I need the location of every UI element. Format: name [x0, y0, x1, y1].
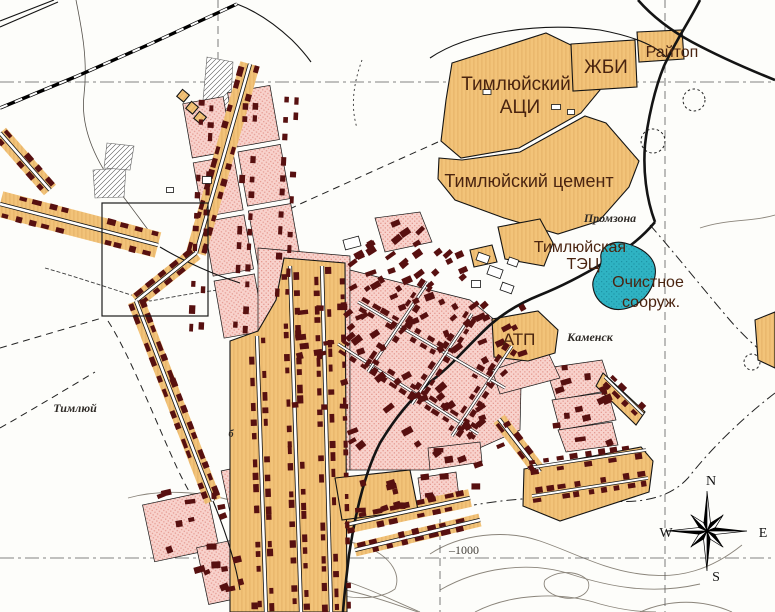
building: [285, 368, 289, 374]
building: [269, 588, 273, 594]
building: [343, 416, 347, 421]
building: [317, 355, 322, 359]
building: [203, 209, 209, 215]
building: [322, 583, 327, 591]
building: [205, 188, 209, 195]
building: [330, 441, 336, 448]
building: [439, 473, 448, 480]
building: [284, 354, 290, 361]
white-building: [472, 281, 481, 288]
building: [249, 357, 254, 365]
building: [295, 334, 306, 341]
building: [584, 373, 591, 380]
building: [341, 302, 347, 309]
building: [318, 455, 324, 461]
building: [201, 286, 206, 293]
building: [289, 521, 295, 527]
building: [458, 273, 466, 281]
building: [347, 602, 351, 609]
building: [289, 491, 293, 497]
label-tec-line1: Тимлюйская: [534, 239, 626, 256]
building: [444, 456, 453, 464]
building: [345, 521, 349, 528]
building: [278, 226, 282, 235]
building: [319, 474, 324, 482]
building: [458, 266, 468, 275]
building: [535, 486, 543, 493]
building: [333, 554, 338, 562]
building: [289, 500, 295, 508]
compass-e: E: [759, 526, 768, 541]
building: [304, 604, 310, 610]
building: [317, 388, 321, 395]
building: [331, 469, 335, 477]
building: [256, 566, 260, 572]
building: [334, 589, 338, 598]
label-aci-line1: Тимлюйский: [461, 74, 570, 95]
white-building: [167, 188, 174, 193]
building: [316, 335, 321, 341]
building: [261, 338, 265, 344]
building: [264, 456, 270, 462]
building: [325, 267, 331, 274]
building: [194, 213, 199, 219]
building: [297, 369, 302, 375]
town-map: N W E S Тимлюйский АЦИ ЖБИ Райтоп Тимлюй…: [0, 0, 775, 612]
building: [345, 494, 349, 499]
stream-line: [76, 0, 152, 235]
building: [198, 322, 204, 330]
building: [266, 514, 272, 520]
building: [255, 542, 260, 548]
building: [395, 502, 405, 509]
building: [294, 97, 299, 105]
building: [286, 268, 291, 277]
building: [265, 475, 271, 482]
building: [556, 455, 564, 460]
building: [262, 371, 266, 378]
building: [221, 566, 228, 572]
building: [189, 324, 193, 332]
building: [297, 385, 303, 394]
building: [413, 269, 425, 280]
building: [353, 250, 364, 260]
building: [573, 491, 580, 498]
building: [304, 590, 308, 597]
building: [327, 309, 331, 317]
building: [292, 402, 299, 408]
building: [299, 343, 309, 350]
building: [434, 448, 444, 453]
building: [196, 175, 201, 182]
building: [245, 264, 250, 271]
tree-icon: [683, 89, 705, 111]
building: [293, 112, 298, 120]
building: [346, 583, 351, 588]
building: [250, 177, 255, 183]
label-aci-line2: АЦИ: [500, 97, 540, 118]
building: [290, 196, 294, 203]
building: [314, 317, 320, 323]
label-zhbi: ЖБИ: [584, 57, 628, 78]
building: [247, 229, 252, 236]
building: [302, 534, 307, 542]
building: [253, 459, 258, 467]
building: [333, 571, 339, 577]
white-building: [552, 105, 561, 110]
building: [328, 348, 332, 357]
building: [287, 245, 291, 253]
building: [471, 483, 480, 489]
building: [195, 192, 201, 199]
building: [342, 362, 345, 368]
building: [206, 171, 211, 177]
building: [290, 172, 296, 178]
building: [303, 547, 308, 554]
building: [609, 447, 617, 454]
building: [282, 134, 287, 141]
building: [433, 248, 442, 257]
building: [443, 249, 453, 259]
building: [202, 246, 207, 253]
label-ochistnoe-line1: Очистное: [612, 274, 684, 291]
building: [266, 506, 272, 514]
building: [264, 419, 268, 426]
building: [254, 505, 259, 513]
building: [585, 451, 592, 457]
building: [431, 268, 439, 276]
label-promzona: Промзона: [583, 211, 636, 225]
building: [276, 253, 283, 260]
white-building: [487, 265, 503, 278]
building: [341, 294, 345, 299]
building: [290, 540, 296, 548]
building: [546, 485, 554, 492]
building: [387, 267, 396, 274]
building: [329, 364, 333, 371]
building: [303, 563, 307, 568]
building: [250, 156, 256, 163]
building: [343, 449, 348, 455]
building: [247, 243, 251, 250]
building: [445, 257, 453, 264]
building: [317, 409, 322, 415]
building: [301, 489, 306, 495]
building: [321, 556, 325, 563]
label-atp: АТП: [503, 330, 536, 349]
tree-symbols: [641, 89, 760, 370]
building: [420, 474, 429, 481]
compass-s: S: [712, 570, 720, 585]
building: [314, 291, 320, 297]
building: [332, 497, 336, 505]
building: [330, 414, 335, 423]
building: [322, 566, 327, 571]
building: [243, 326, 248, 334]
building: [314, 277, 318, 286]
building: [245, 281, 249, 287]
building: [193, 226, 199, 232]
building: [496, 442, 505, 449]
building: [335, 604, 339, 610]
white-building: [203, 177, 212, 184]
building: [598, 448, 606, 455]
building: [635, 453, 643, 460]
building: [340, 404, 349, 409]
building: [328, 389, 334, 394]
white-building: [568, 110, 575, 115]
label-cement: Тимлюйский цемент: [444, 171, 613, 191]
building: [340, 278, 345, 284]
building: [279, 188, 284, 195]
building: [256, 551, 261, 557]
label-tec-line2: ТЭЦ: [566, 256, 599, 273]
building: [265, 489, 271, 498]
compass-w: W: [659, 526, 673, 541]
building: [280, 175, 286, 182]
building: [284, 332, 289, 338]
building: [322, 605, 328, 612]
building: [278, 211, 283, 217]
building: [320, 523, 325, 531]
building: [288, 446, 292, 454]
building: [233, 321, 238, 327]
building: [242, 116, 247, 122]
building: [208, 133, 213, 141]
building: [239, 175, 245, 184]
building: [569, 453, 578, 460]
building: [317, 371, 321, 377]
map-canvas: N W E S Тимлюйский АЦИ ЖБИ Райтоп Тимлюй…: [0, 0, 775, 612]
building: [189, 305, 196, 314]
building: [217, 504, 225, 510]
building: [207, 122, 213, 128]
building: [286, 399, 290, 406]
building: [543, 458, 549, 463]
building: [287, 426, 292, 433]
building: [193, 244, 198, 251]
building: [267, 549, 273, 557]
building: [294, 290, 300, 296]
building: [248, 191, 254, 198]
building: [601, 487, 608, 493]
building: [412, 248, 423, 259]
building: [252, 103, 258, 110]
building: [191, 281, 195, 287]
building: [600, 477, 606, 483]
building: [275, 288, 280, 296]
white-building: [500, 282, 514, 294]
building: [317, 421, 322, 426]
label-elevation: –1000: [448, 543, 479, 557]
building: [641, 481, 647, 487]
building: [330, 452, 335, 461]
building: [285, 289, 289, 295]
building: [613, 485, 619, 491]
building: [251, 419, 257, 426]
building: [251, 403, 256, 411]
building: [243, 306, 249, 314]
building: [262, 407, 268, 413]
building: [574, 481, 581, 487]
building: [211, 492, 216, 499]
building: [199, 119, 203, 124]
building: [209, 105, 213, 111]
building: [316, 305, 324, 311]
building: [287, 232, 292, 238]
building: [248, 213, 252, 220]
building: [317, 358, 321, 367]
building: [480, 301, 489, 310]
building: [301, 503, 306, 510]
building: [355, 508, 366, 513]
building: [344, 473, 349, 478]
label-ochistnoe-line2: сооруж.: [622, 294, 680, 311]
building: [288, 463, 294, 470]
label-raytop: Райтоп: [646, 44, 699, 61]
building: [321, 404, 327, 409]
building: [211, 561, 220, 568]
building: [175, 520, 182, 527]
building: [564, 413, 570, 419]
building: [301, 511, 306, 519]
building: [250, 378, 255, 387]
building: [199, 100, 205, 106]
building: [253, 484, 259, 492]
building: [455, 250, 465, 259]
building: [292, 598, 296, 604]
building: [284, 324, 288, 329]
building: [281, 157, 286, 166]
building: [262, 392, 267, 401]
building: [321, 534, 325, 540]
building: [237, 242, 242, 249]
compass-n: N: [706, 474, 716, 489]
building: [237, 226, 242, 235]
building: [344, 441, 348, 448]
building: [291, 557, 297, 563]
building: [252, 433, 257, 440]
building: [253, 115, 258, 122]
label-kamensk: Каменск: [566, 330, 614, 344]
label-timlyuy: Тимлюй: [53, 401, 97, 415]
building: [253, 473, 259, 480]
building: [268, 541, 272, 547]
building: [293, 272, 299, 280]
building: [561, 365, 567, 371]
building: [236, 265, 241, 274]
building: [589, 489, 595, 495]
building: [601, 388, 607, 395]
building: [345, 537, 350, 544]
building: [251, 602, 258, 609]
building: [291, 585, 297, 592]
building: [269, 603, 274, 611]
building: [300, 462, 305, 469]
compass-rose: N W E S: [659, 474, 767, 585]
building: [243, 103, 249, 110]
building: [283, 117, 288, 123]
building: [343, 397, 346, 404]
building: [385, 251, 396, 261]
building: [623, 473, 630, 480]
building: [345, 504, 350, 511]
building: [552, 422, 560, 428]
building: [258, 601, 262, 608]
white-building: [343, 236, 361, 250]
building: [284, 97, 289, 103]
